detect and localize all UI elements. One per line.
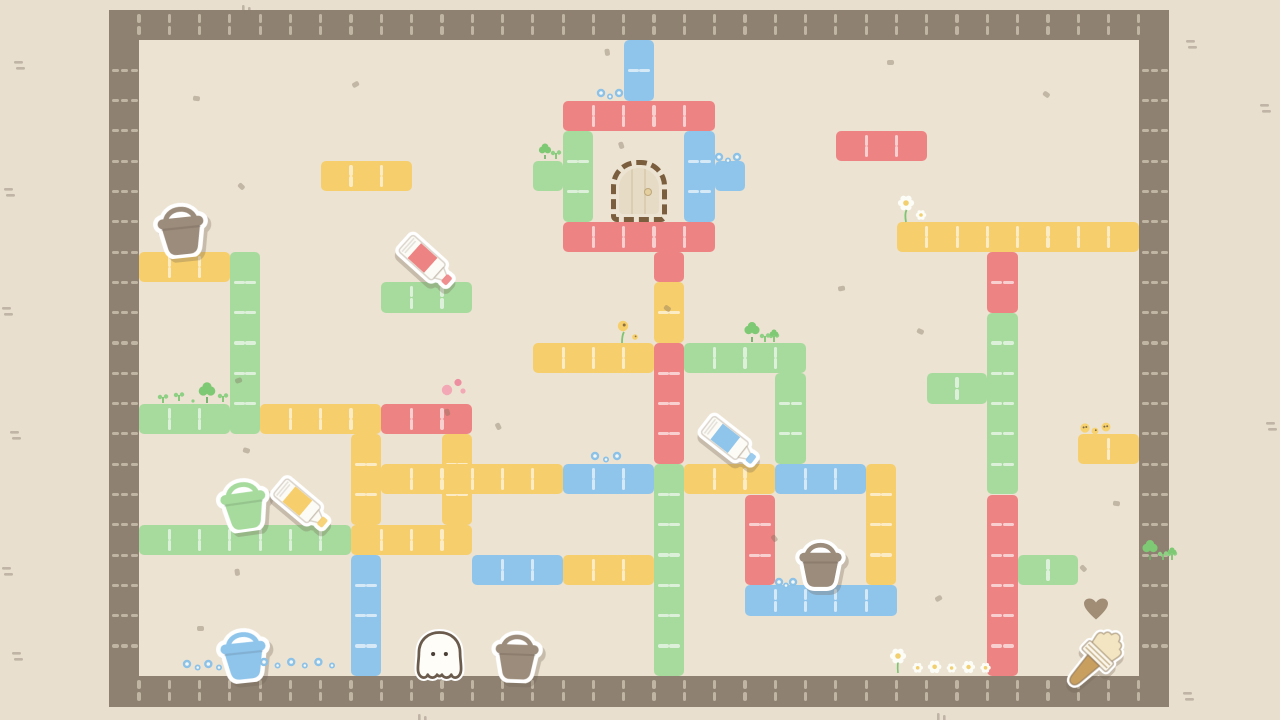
stitch-dash <box>870 553 881 556</box>
stitch-dash <box>198 419 201 430</box>
stitch-dash <box>1161 463 1168 466</box>
stitch-dash <box>131 251 138 254</box>
block-green <box>381 282 472 312</box>
stitch-dash <box>319 692 322 701</box>
stitch-dash <box>622 570 625 581</box>
stitch-dash <box>440 692 443 701</box>
stitch-dash <box>986 692 989 701</box>
stitch-dash <box>1151 432 1158 435</box>
block-green <box>563 131 593 222</box>
block-green <box>1018 555 1079 585</box>
stitch-dash <box>774 14 777 23</box>
stitch-dash <box>713 26 716 35</box>
stitch-dash <box>168 419 171 430</box>
stitch-dash <box>1151 160 1158 163</box>
stitch-dash <box>1142 432 1149 435</box>
stitch-dash <box>991 281 1002 284</box>
plants-row-decoration <box>155 381 233 405</box>
outer-stitch-mark <box>2 303 16 315</box>
stitch-dash <box>895 14 898 23</box>
stitch-dash <box>1142 69 1149 72</box>
stitch-dash <box>779 432 790 435</box>
flower-white-decoration <box>894 193 930 225</box>
stitch-dash <box>319 419 322 430</box>
stitch-dash <box>834 692 837 701</box>
stitch-dash <box>349 165 352 176</box>
block-green <box>139 404 230 434</box>
stitch-dash <box>501 570 504 581</box>
stitch-dash <box>531 570 534 581</box>
stitch-dash <box>774 680 777 689</box>
stitch-dash <box>865 601 868 612</box>
door-panel <box>619 168 659 214</box>
stitch-dash <box>410 14 413 23</box>
stitch-dash <box>1142 372 1149 375</box>
block-green <box>927 373 988 403</box>
stitch-dash <box>652 237 655 248</box>
stitch-dash <box>592 226 595 237</box>
stitch-dash <box>1077 237 1080 248</box>
stitch-dash <box>380 176 383 187</box>
stitch-dash <box>881 553 892 556</box>
stitch-dash <box>198 267 201 278</box>
stitch-dash <box>531 479 534 490</box>
outer-stitch-mark <box>4 184 18 196</box>
stitch-dash <box>1107 438 1110 449</box>
stitch-dash <box>592 237 595 248</box>
stitch-dash <box>198 529 201 540</box>
stitch-dash <box>137 680 140 689</box>
stitch-dash <box>652 14 655 23</box>
door-knob-icon <box>644 188 652 196</box>
stitch-dash <box>121 341 128 344</box>
stitch-dash <box>804 601 807 612</box>
stitch-dash <box>1137 14 1140 23</box>
flowers-blue-decoration <box>773 573 805 591</box>
stitch-dash <box>121 69 128 72</box>
stitch-dash <box>804 468 807 479</box>
stitch-dash <box>198 14 201 23</box>
block-red <box>987 252 1017 313</box>
stitch-dash <box>349 680 352 689</box>
stitch-dash <box>1107 680 1110 689</box>
stitch-dash <box>683 14 686 23</box>
stitch-dash <box>592 116 595 127</box>
stitch-dash <box>531 26 534 35</box>
stitch-dash <box>1142 523 1149 526</box>
stitch-dash <box>1016 226 1019 237</box>
stitch-dash <box>1107 692 1110 701</box>
block-green <box>654 464 684 676</box>
stitch-dash <box>1107 226 1110 237</box>
stitch-dash <box>991 523 1002 526</box>
stitch-dash <box>652 116 655 127</box>
outer-stitch-mark <box>1186 36 1200 48</box>
stitch-dash <box>1161 523 1168 526</box>
stitch-dash <box>683 105 686 116</box>
stitch-dash <box>1161 584 1168 587</box>
stitch-dash <box>562 358 565 369</box>
stitch-dash <box>567 190 578 193</box>
stitch-dash <box>713 468 716 479</box>
stitch-dash <box>112 372 119 375</box>
block-blue <box>563 464 654 494</box>
stitch-dash <box>380 165 383 176</box>
stitch-dash <box>1046 692 1049 701</box>
stitch-dash <box>380 529 383 540</box>
stitch-dash <box>1151 311 1158 314</box>
stitch-dash <box>743 347 746 358</box>
stitch-dash <box>131 281 138 284</box>
stitch-dash <box>245 402 256 405</box>
stitch-dash <box>1161 69 1168 72</box>
stitch-dash <box>991 402 1002 405</box>
outer-stitch-mark <box>241 2 255 14</box>
stitch-dash <box>440 468 443 479</box>
stitch-dash <box>713 358 716 369</box>
stitch-dash <box>895 26 898 35</box>
stitch-dash <box>804 479 807 490</box>
stitch-dash <box>622 14 625 23</box>
stitch-dash <box>112 493 119 496</box>
stitch-dash <box>410 298 413 309</box>
stitch-dash <box>245 281 256 284</box>
stitch-dash <box>1046 26 1049 35</box>
stitch-dash <box>1077 226 1080 237</box>
stitch-dash <box>355 584 366 587</box>
stitch-dash <box>895 146 898 157</box>
stitch-dash <box>955 389 958 400</box>
stitch-dash <box>112 311 119 314</box>
stitch-dash <box>198 692 201 701</box>
stitch-dash <box>1107 26 1110 35</box>
stitch-dash <box>245 341 256 344</box>
stitch-dash <box>1142 160 1149 163</box>
stitch-dash <box>1003 584 1014 587</box>
stitch-dash <box>774 358 777 369</box>
block-green <box>775 373 805 464</box>
stitch-dash <box>592 468 595 479</box>
stitch-dash <box>168 408 171 419</box>
stitch-dash <box>1142 311 1149 314</box>
block-green <box>987 313 1017 495</box>
stitch-dash <box>791 432 802 435</box>
stitch-dash <box>112 584 119 587</box>
stitch-dash <box>881 493 892 496</box>
stitch-dash <box>349 176 352 187</box>
stitch-dash <box>137 692 140 701</box>
stitch-dash <box>234 311 245 314</box>
stitch-dash <box>1142 220 1149 223</box>
stitch-dash <box>1151 614 1158 617</box>
stitch-dash <box>531 559 534 570</box>
outer-stitch-mark <box>1183 688 1197 700</box>
stitch-dash <box>131 402 138 405</box>
stitch-dash <box>652 26 655 35</box>
dust-speckle <box>887 60 894 65</box>
stitch-dash <box>1142 99 1149 102</box>
stitch-dash <box>743 479 746 490</box>
stitch-dash <box>991 432 1002 435</box>
stitch-dash <box>658 372 669 375</box>
stitch-dash <box>622 692 625 701</box>
stitch-dash <box>355 463 366 466</box>
stitch-dash <box>1151 493 1158 496</box>
stitch-dash <box>700 190 711 193</box>
stitch-dash <box>925 14 928 23</box>
stitch-dash <box>366 644 377 647</box>
stitch-dash <box>622 226 625 237</box>
stitch-dash <box>1003 554 1014 557</box>
stitch-dash <box>355 644 366 647</box>
outer-stitch-mark <box>1266 418 1280 430</box>
flower-yellow-decoration <box>612 317 642 345</box>
stitch-dash <box>991 584 1002 587</box>
stitch-dash <box>380 26 383 35</box>
stitch-dash <box>121 644 128 647</box>
stitch-dash <box>112 281 119 284</box>
stitch-dash <box>410 692 413 701</box>
block-yellow <box>533 343 654 373</box>
stitch-dash <box>562 347 565 358</box>
stitch-dash <box>713 479 716 490</box>
stitch-dash <box>319 14 322 23</box>
stitch-dash <box>440 298 443 309</box>
block-green <box>533 161 563 191</box>
stitch-dash <box>669 402 680 405</box>
stitch-dash <box>688 190 699 193</box>
stitch-dash <box>131 644 138 647</box>
wall-left <box>109 40 139 676</box>
stitch-dash <box>1046 559 1049 570</box>
stitch-dash <box>131 523 138 526</box>
stitch-dash <box>986 226 989 237</box>
green-bucket[interactable] <box>209 469 278 536</box>
stitch-dash <box>774 347 777 358</box>
stitch-dash <box>121 402 128 405</box>
block-yellow <box>381 464 563 494</box>
stitch-dash <box>366 463 377 466</box>
stitch-dash <box>713 347 716 358</box>
stitch-dash <box>779 402 790 405</box>
stitch-dash <box>501 14 504 23</box>
stitch-dash <box>628 69 639 72</box>
stitch-dash <box>622 26 625 35</box>
stitch-dash <box>1151 99 1158 102</box>
stitch-dash <box>1142 402 1149 405</box>
stitch-dash <box>471 14 474 23</box>
stitch-dash <box>198 256 201 267</box>
stitch-dash <box>410 468 413 479</box>
stitch-dash <box>112 554 119 557</box>
stitch-dash <box>688 160 699 163</box>
stitch-dash <box>743 692 746 701</box>
dots-yellow-decoration <box>1078 420 1114 438</box>
stitch-dash <box>986 26 989 35</box>
stitch-dash <box>501 479 504 490</box>
stitch-dash <box>1151 69 1158 72</box>
block-red <box>745 495 775 586</box>
stitch-dash <box>669 584 680 587</box>
stitch-dash <box>955 377 958 388</box>
stitch-dash <box>658 523 669 526</box>
stitch-dash <box>622 347 625 358</box>
stitch-dash <box>743 14 746 23</box>
stitch-dash <box>112 341 119 344</box>
stitch-dash <box>658 553 669 556</box>
block-red <box>563 222 715 252</box>
stitch-dash <box>355 493 366 496</box>
stitch-dash <box>1142 341 1149 344</box>
stitch-dash <box>501 692 504 701</box>
stitch-dash <box>228 540 231 551</box>
stitch-dash <box>1151 372 1158 375</box>
brown-bucket-1[interactable] <box>147 194 215 261</box>
stitch-dash <box>1161 190 1168 193</box>
stitch-dash <box>289 540 292 551</box>
stitch-dash <box>1003 341 1014 344</box>
stitch-dash <box>380 14 383 23</box>
stitch-dash <box>440 529 443 540</box>
stitch-dash <box>1046 680 1049 689</box>
stitch-dash <box>1151 251 1158 254</box>
stitch-dash <box>112 463 119 466</box>
clover-decoration <box>531 142 563 160</box>
stitch-dash <box>380 540 383 551</box>
block-green <box>684 343 805 373</box>
stitch-dash <box>870 493 881 496</box>
block-blue <box>775 464 866 494</box>
stitch-dash <box>131 220 138 223</box>
stitch-dash <box>658 493 669 496</box>
stitch-dash <box>955 26 958 35</box>
stitch-dash <box>1003 523 1014 526</box>
stitch-dash <box>228 26 231 35</box>
block-yellow <box>260 404 381 434</box>
stitch-dash <box>355 614 366 617</box>
stitch-dash <box>112 402 119 405</box>
stitch-dash <box>245 311 256 314</box>
stitch-dash <box>259 680 262 689</box>
stitch-dash <box>440 14 443 23</box>
stitch-dash <box>245 372 256 375</box>
stitch-dash <box>410 680 413 689</box>
stitch-dash <box>592 26 595 35</box>
stitch-dash <box>1046 14 1049 23</box>
block-yellow <box>654 282 684 343</box>
octopus-character[interactable] <box>414 628 465 683</box>
stitch-dash <box>440 419 443 430</box>
stitch-dash <box>749 523 760 526</box>
stitch-dash <box>1161 644 1168 647</box>
stitch-dash <box>410 479 413 490</box>
stitch-dash <box>592 570 595 581</box>
stitch-dash <box>865 26 868 35</box>
stitch-dash <box>131 614 138 617</box>
block-yellow <box>351 434 381 525</box>
stitch-dash <box>991 463 1002 466</box>
stitch-dash <box>121 493 128 496</box>
stitch-dash <box>501 26 504 35</box>
flowers-blue-decoration <box>595 84 631 102</box>
stitch-dash <box>471 26 474 35</box>
stitch-dash <box>622 116 625 127</box>
stitch-dash <box>131 69 138 72</box>
dust-speckle <box>235 568 240 576</box>
stitch-dash <box>259 540 262 551</box>
stitch-dash <box>121 463 128 466</box>
stitch-dash <box>834 680 837 689</box>
stitch-dash <box>1016 26 1019 35</box>
stitch-dash <box>131 99 138 102</box>
stitch-dash <box>743 358 746 369</box>
stitch-dash <box>234 402 245 405</box>
stitch-dash <box>1046 226 1049 237</box>
clover-group-decoration <box>741 316 783 343</box>
stitch-dash <box>1016 680 1019 689</box>
stitch-dash <box>112 69 119 72</box>
stitch-dash <box>259 14 262 23</box>
stitch-dash <box>1016 237 1019 248</box>
stitch-dash <box>1151 129 1158 132</box>
stitch-dash <box>1107 237 1110 248</box>
stitch-dash <box>986 14 989 23</box>
stitch-dash <box>578 160 589 163</box>
stitch-dash <box>440 26 443 35</box>
block-yellow <box>684 464 775 494</box>
stitch-dash <box>1161 372 1168 375</box>
stitch-dash <box>743 26 746 35</box>
block-red <box>654 252 684 282</box>
stitch-dash <box>700 160 711 163</box>
stitch-dash <box>791 402 802 405</box>
stitch-dash <box>834 14 837 23</box>
game-stage <box>0 0 1280 720</box>
stitch-dash <box>121 584 128 587</box>
stitch-dash <box>410 419 413 430</box>
stitch-dash <box>895 135 898 146</box>
stitch-dash <box>834 26 837 35</box>
stitch-dash <box>683 226 686 237</box>
stitch-dash <box>440 479 443 490</box>
stitch-dash <box>1142 584 1149 587</box>
stitch-dash <box>834 468 837 479</box>
block-yellow <box>321 161 412 191</box>
stitch-dash <box>1077 26 1080 35</box>
stitch-dash <box>1161 341 1168 344</box>
stitch-dash <box>834 601 837 612</box>
dust-speckle <box>197 626 204 631</box>
stitch-dash <box>592 14 595 23</box>
brown-bucket-3[interactable] <box>487 624 547 684</box>
stitch-dash <box>349 692 352 701</box>
stitch-dash <box>168 14 171 23</box>
stitch-dash <box>319 26 322 35</box>
stitch-dash <box>131 311 138 314</box>
stitch-dash <box>410 26 413 35</box>
stitch-dash <box>121 311 128 314</box>
stitch-dash <box>289 419 292 430</box>
dust-speckle <box>193 96 200 101</box>
stitch-dash <box>669 614 680 617</box>
stitch-dash <box>865 692 868 701</box>
stitch-dash <box>713 14 716 23</box>
stitch-dash <box>955 14 958 23</box>
stitch-dash <box>198 540 201 551</box>
door[interactable] <box>611 160 667 222</box>
stitch-dash <box>289 680 292 689</box>
stitch-dash <box>121 99 128 102</box>
